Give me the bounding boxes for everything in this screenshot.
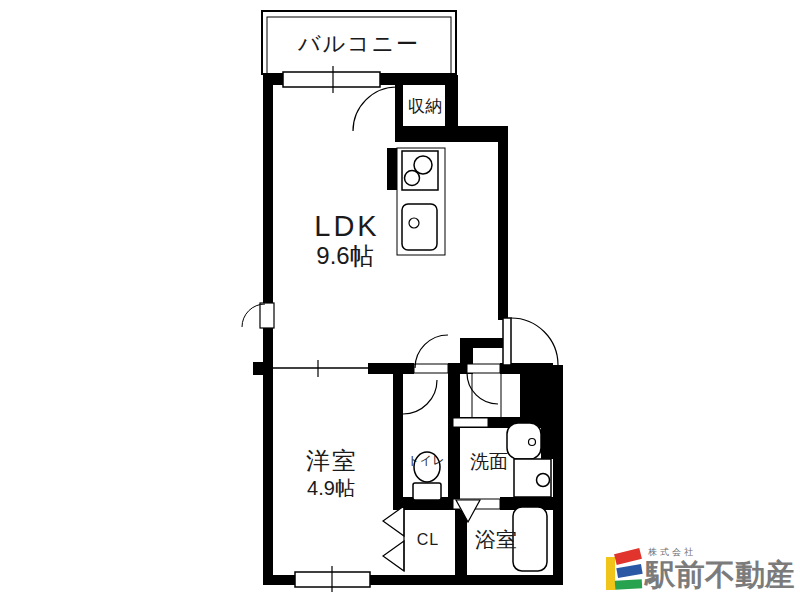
closet-folding-door <box>383 506 404 571</box>
storage-label: 収納 <box>408 98 442 116</box>
stove-burner-2 <box>405 171 420 186</box>
western-room-size-label: 4.9帖 <box>307 478 355 499</box>
wall-storage-bottom <box>395 126 508 142</box>
wall-washroom-top <box>448 417 553 428</box>
wall-bottom <box>263 575 563 585</box>
balcony-label: バルコニー <box>298 32 420 55</box>
washing-machine-pan <box>514 459 551 497</box>
kitchen-sink <box>402 204 437 250</box>
logo-bar-green <box>615 579 642 589</box>
wall-closet-right <box>455 510 467 575</box>
western-room-label: 洋室 <box>306 448 358 473</box>
ldk-label: LDK <box>314 211 379 241</box>
wall-bathroom-top <box>500 497 553 510</box>
toilet-label: トイレ <box>408 454 445 467</box>
door-arc-western-room <box>415 335 448 368</box>
doorway-western-room <box>414 364 448 373</box>
closet-label: CL <box>417 532 439 549</box>
company-name: 駅前不動産 <box>645 555 795 596</box>
door-arc-washroom <box>467 373 498 404</box>
wall-toilet-left <box>393 368 403 510</box>
door-entrance <box>503 318 558 365</box>
wall-basin-side <box>541 420 553 459</box>
wall-hall-c <box>500 363 553 374</box>
wall-right-lower <box>553 365 563 585</box>
door-arc-storage <box>353 87 397 131</box>
wall-hall-b <box>448 363 467 374</box>
wall-toilet-right <box>448 374 460 510</box>
wall-hall-a <box>368 363 414 374</box>
doorway-bathroom <box>453 499 500 509</box>
logo-bar-yellow <box>606 557 615 590</box>
floorplan: バルコニー 収納 LDK 9.6帖 洋室 4.9帖 トイレ 洗面 CL 浴室 株… <box>0 0 800 600</box>
company-logo: 株式会社 駅前不動産 <box>603 543 798 595</box>
stove <box>402 151 438 190</box>
window-ldk-balcony <box>283 66 380 93</box>
wall-right-upper <box>498 128 508 320</box>
ldk-size-label: 9.6帖 <box>316 243 373 268</box>
wall-storage-left <box>395 75 403 128</box>
bathroom-label: 浴室 <box>475 529 517 551</box>
logo-bar-red <box>614 548 642 565</box>
logo-bar-blue <box>616 564 642 578</box>
washbasin <box>507 423 541 459</box>
wall-kitchen-stub <box>387 148 397 190</box>
washroom-label: 洗面 <box>470 452 508 472</box>
bathtub <box>513 507 547 571</box>
kitchen-counter <box>397 148 445 255</box>
wall-toilet-bottom <box>393 497 460 510</box>
wall-partition-nub <box>253 362 263 375</box>
wall-storage-right <box>445 75 458 128</box>
partition-ldk-western <box>273 360 368 377</box>
door-arc-toilet <box>403 380 437 414</box>
sink-drain <box>409 218 419 228</box>
stove-burner-1 <box>414 156 432 174</box>
wall-left <box>263 75 273 585</box>
